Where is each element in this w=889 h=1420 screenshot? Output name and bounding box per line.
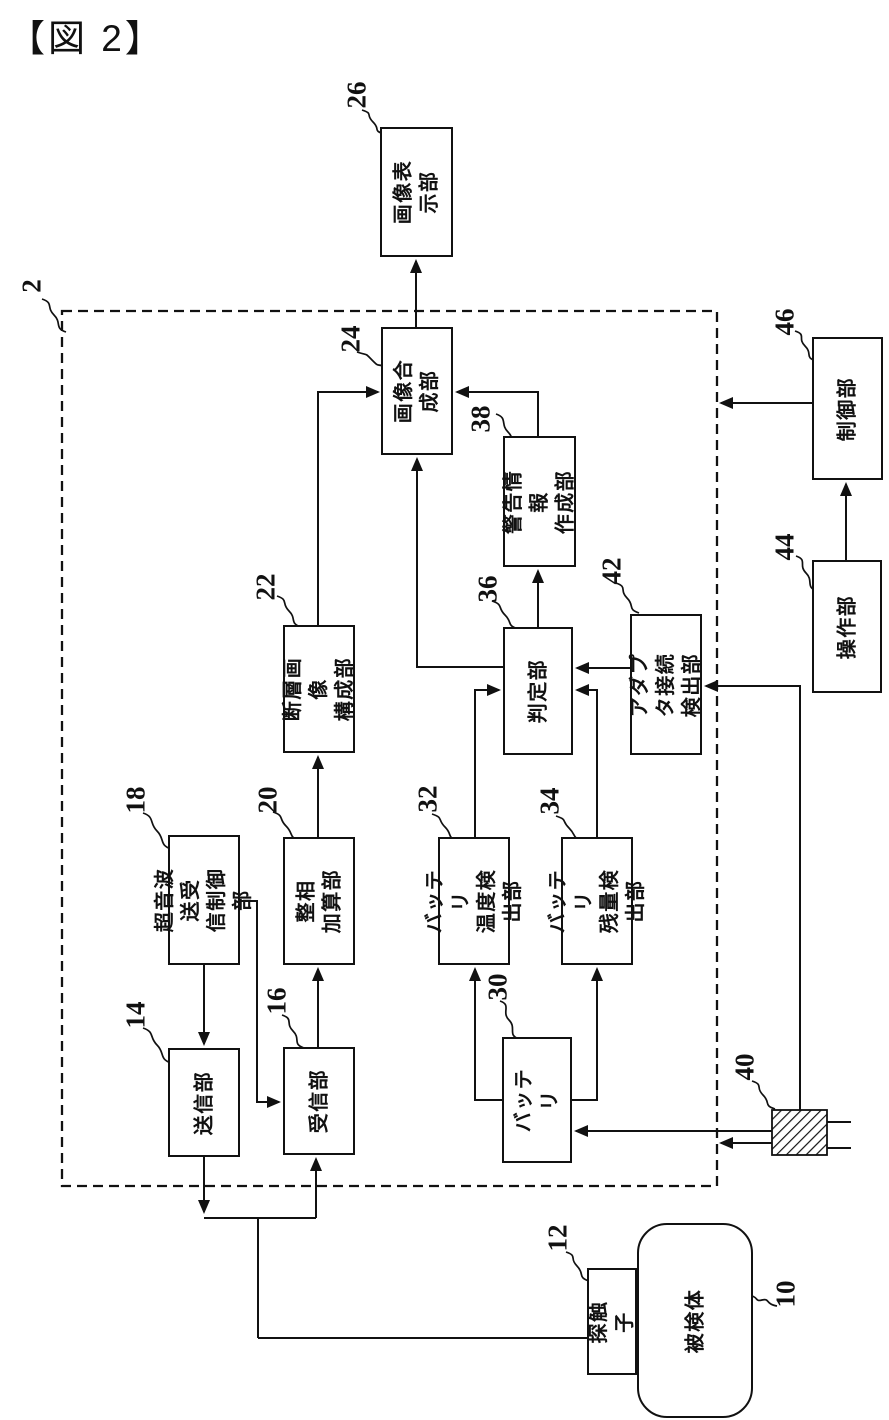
ref-22: 22 — [251, 574, 282, 601]
probe-connectors — [204, 1218, 587, 1338]
phasing-addition-unit-box: 整相 加算部 — [283, 837, 355, 965]
warning-info-creation-unit-box: 警告情報 作成部 — [503, 436, 576, 567]
reception-unit-box: 受信部 — [283, 1047, 355, 1155]
probe-box: 探触子 — [587, 1268, 637, 1375]
leader-22 — [277, 596, 301, 627]
arrow-32-to-36 — [475, 690, 499, 837]
arrow-30-to-34 — [572, 969, 597, 1100]
subject-label: 被検体 — [682, 1288, 708, 1353]
battery-temperature-detection-unit-label: バッテリ 温度検出部 — [422, 867, 526, 935]
ref-30: 30 — [483, 974, 514, 1001]
ref-14: 14 — [121, 1002, 152, 1029]
ac-adapter-hatched-box — [772, 1110, 827, 1155]
ref-42: 42 — [597, 558, 628, 585]
control-unit-box: 制御部 — [812, 337, 883, 480]
patent-figure-canvas: 【図 2】 — [0, 0, 889, 1420]
subject-box: 被検体 — [637, 1223, 753, 1418]
transmission-unit-label: 送信部 — [191, 1070, 217, 1135]
leader-30 — [500, 1001, 519, 1039]
image-synthesis-unit-box: 画像合成部 — [381, 327, 453, 455]
ref-20: 20 — [253, 787, 284, 814]
arrow-34-to-36 — [577, 690, 597, 837]
battery-level-detection-unit-box: バッテリ 残量検出部 — [561, 837, 633, 965]
arrow-22-to-24 — [318, 392, 378, 625]
image-display-unit-label: 画像表示部 — [391, 158, 443, 227]
ac-adapter-block — [772, 1110, 851, 1155]
leader-40 — [752, 1081, 775, 1109]
leader-36 — [492, 601, 518, 629]
ultrasound-tx-rx-control-unit-label: 超音波送受 信制御部 — [152, 866, 256, 934]
determination-unit-box: 判定部 — [503, 627, 573, 755]
ref-32: 32 — [413, 786, 444, 813]
adapter-connection-detection-unit-box: アダプタ接続 検出部 — [630, 614, 702, 755]
tomographic-image-construction-unit-box: 断層画像 構成部 — [283, 625, 355, 753]
ref-18: 18 — [121, 787, 152, 814]
arrow-40-to-42 — [706, 686, 800, 1110]
ref-38: 38 — [466, 406, 497, 433]
operation-unit-label: 操作部 — [834, 594, 860, 659]
reception-unit-label: 受信部 — [306, 1069, 332, 1134]
determination-unit-label: 判定部 — [525, 659, 551, 724]
arrow-36-to-24 — [417, 459, 503, 667]
ref-46: 46 — [770, 309, 801, 336]
leader-14 — [143, 1028, 171, 1063]
ref-26: 26 — [342, 82, 373, 109]
operation-unit-box: 操作部 — [812, 560, 882, 693]
tomographic-image-construction-unit-label: 断層画像 構成部 — [280, 655, 358, 723]
leader-12 — [566, 1252, 589, 1281]
ref-10: 10 — [771, 1281, 802, 1308]
image-display-unit-box: 画像表示部 — [380, 127, 453, 257]
ultrasound-tx-rx-control-unit-box: 超音波送受 信制御部 — [168, 835, 240, 965]
ref-40: 40 — [730, 1054, 761, 1081]
ref-24: 24 — [336, 326, 367, 353]
battery-temperature-detection-unit-box: バッテリ 温度検出部 — [438, 837, 510, 965]
ref-34: 34 — [535, 788, 566, 815]
leader-42 — [616, 583, 639, 613]
ref-2: 2 — [17, 279, 48, 293]
battery-box: バッテリ — [502, 1037, 572, 1163]
image-synthesis-unit-label: 画像合成部 — [391, 357, 443, 425]
phasing-addition-unit-label: 整相 加算部 — [293, 869, 345, 934]
probe-label: 探触子 — [586, 1299, 638, 1345]
adapter-connection-detection-unit-label: アダプタ接続 検出部 — [627, 651, 705, 719]
ref-44: 44 — [770, 534, 801, 561]
ref-16: 16 — [262, 988, 293, 1015]
ref-36: 36 — [473, 576, 504, 603]
leader-18 — [143, 813, 171, 849]
ref-12: 12 — [543, 1225, 574, 1252]
leader-16 — [282, 1015, 304, 1048]
battery-label: バッテリ — [511, 1067, 563, 1133]
battery-level-detection-unit-label: バッテリ 残量検出部 — [545, 867, 649, 935]
transmission-unit-box: 送信部 — [168, 1048, 240, 1157]
control-unit-label: 制御部 — [835, 376, 861, 441]
warning-info-creation-unit-label: 警告情報 作成部 — [501, 467, 579, 536]
